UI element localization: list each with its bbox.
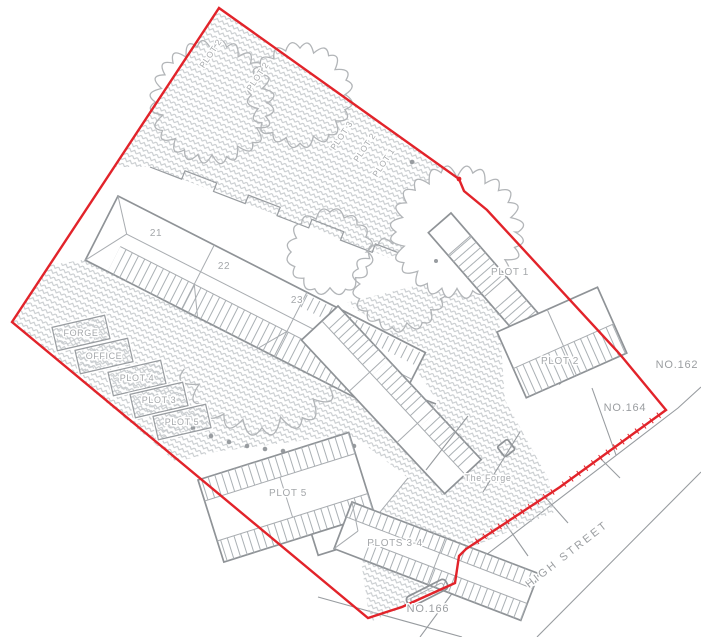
plot5-cell-label: PLOT 5 — [165, 417, 199, 427]
unit-21-label: 21 — [150, 228, 162, 239]
site-plan-drawing: 21 22 23 PLOT 1 PLOT 2 PLOT 5 PLOTS 3-4 … — [0, 0, 701, 637]
plots34-label: PLOTS 3-4 — [367, 538, 422, 549]
hedge-dot-1 — [209, 434, 214, 439]
no164-label: NO.164 — [604, 402, 647, 414]
frontage-line-3 — [600, 458, 620, 478]
forge-cell-label: FORGE — [63, 328, 98, 338]
hedge-dot-2 — [227, 440, 232, 445]
plot4-cell-label: PLOT 4 — [120, 373, 154, 383]
plot5-label: PLOT 5 — [269, 488, 307, 499]
tree-dot-2 — [434, 259, 438, 263]
boundary-hedge-dot-0 — [410, 160, 415, 165]
plot1-label: PLOT 1 — [491, 267, 529, 278]
hedge-dot-3 — [245, 444, 250, 449]
plot-division-no164 — [592, 388, 616, 455]
unit-22-label: 22 — [218, 261, 230, 272]
the-forge-label: The Forge — [465, 473, 512, 483]
plot2-label: PLOT 2 — [541, 356, 579, 367]
no162-label: NO.162 — [656, 359, 699, 371]
hedge-dot-4 — [263, 447, 268, 452]
boundary-vertex-dot — [457, 177, 462, 182]
high-street-label: HIGH STREET — [523, 519, 610, 591]
plot3-cell-label: PLOT 3 — [142, 395, 176, 405]
unit-23-label: 23 — [291, 295, 303, 306]
site-plan-page: 21 22 23 PLOT 1 PLOT 2 PLOT 5 PLOTS 3-4 … — [0, 0, 701, 637]
no166-label: NO.166 — [407, 603, 450, 615]
office-cell-label: OFFICE — [86, 351, 123, 361]
